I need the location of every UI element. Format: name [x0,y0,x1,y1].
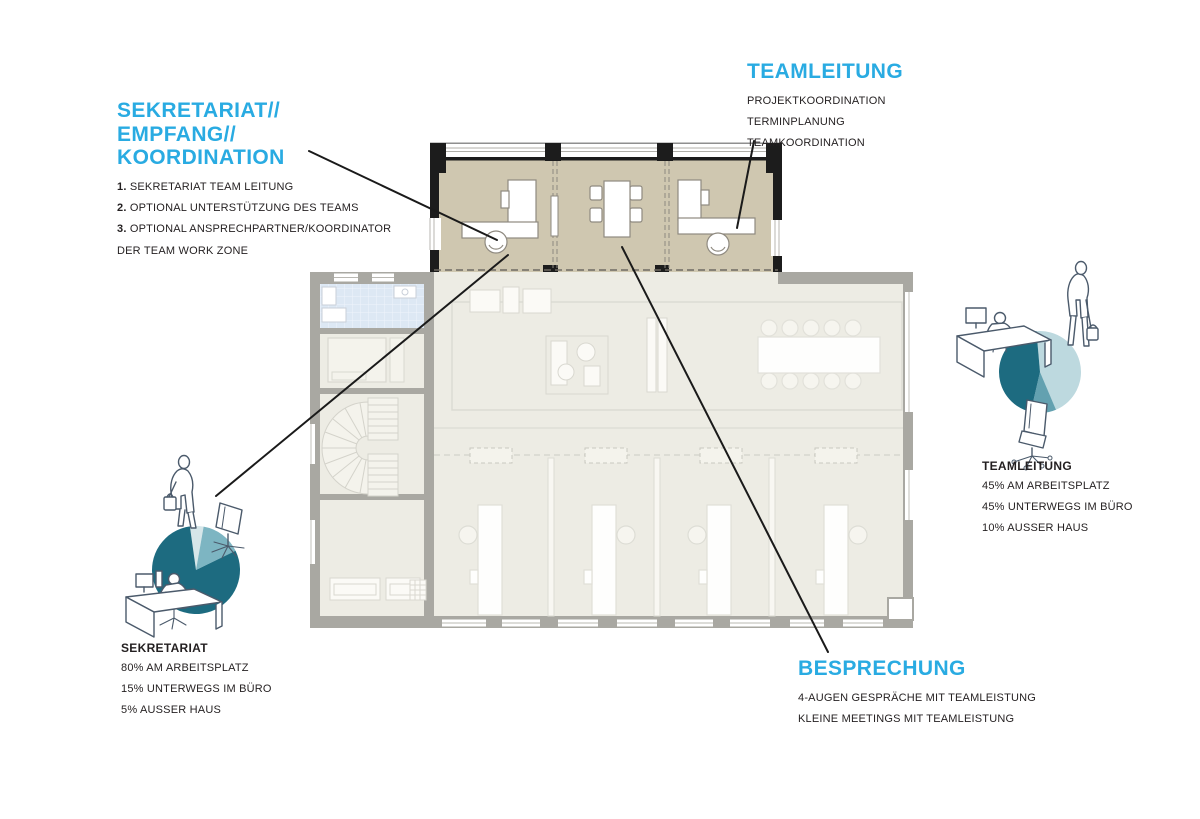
list-item: TEAMKOORDINATION [747,133,903,154]
walking-person-illustration [164,456,196,529]
teamwork-zone [427,143,785,273]
stats-line: 10% AUSSER HAUS [982,518,1133,539]
annotation-list: PROJEKTKOORDINATION TERMINPLANUNG TEAMKO… [747,91,903,155]
stats-line: 80% AM ARBEITSPLATZ [121,658,272,679]
stats-line: 15% UNTERWEGS IM BÜRO [121,679,272,700]
walking-person-illustration-right [1068,262,1098,347]
annotation-title: SEKRETARIAT// EMPFANG// KOORDINATION [117,99,391,170]
list-item: 2. OPTIONAL UNTERSTÜTZUNG DES TEAMS [117,198,391,219]
list-item: 4-AUGEN GESPRÄCHE MIT TEAMLEISTUNG [798,688,1036,709]
annotation-title: TEAMLEITUNG [747,60,903,84]
small-room [328,338,404,382]
list-item: KLEINE MEETINGS MIT TEAMLEISTUNG [798,709,1036,730]
list-item: TERMINPLANUNG [747,112,903,133]
corner-notch [888,598,913,620]
infographic-canvas: SEKRETARIAT// EMPFANG// KOORDINATION 1. … [0,0,1200,819]
stats-line: 45% UNTERWEGS IM BÜRO [982,497,1133,518]
list-item: DER TEAM WORK ZONE [117,241,391,262]
annotation-teamleitung-zone: TEAMLEITUNG PROJEKTKOORDINATION TERMINPL… [747,60,903,155]
bottom-left-room [330,578,426,600]
annotation-list: 1. SEKRETARIAT TEAM LEITUNG 2. OPTIONAL … [117,177,391,263]
annotation-title: BESPRECHUNG [798,657,1036,681]
bathroom [320,284,424,328]
stats-line: 45% AM ARBEITSPLATZ [982,476,1133,497]
stats-sekretariat: SEKRETARIAT 80% AM ARBEITSPLATZ 15% UNTE… [121,641,272,721]
stats-line: 5% AUSSER HAUS [121,700,272,721]
stats-teamleitung: TEAMLEITUNG 45% AM ARBEITSPLATZ 45% UNTE… [982,459,1133,539]
annotation-besprechung: BESPRECHUNG 4-AUGEN GESPRÄCHE MIT TEAMLE… [798,657,1036,730]
zone-door-leaf [551,196,558,236]
stats-title: SEKRETARIAT [121,641,272,655]
building-lower-faded [307,272,913,628]
list-item: 1. SEKRETARIAT TEAM LEITUNG [117,177,391,198]
list-item: 3. OPTIONAL ANSPRECHPARTNER/KOORDINATOR [117,219,391,240]
stats-title: TEAMLEITUNG [982,459,1133,473]
annotation-list: 4-AUGEN GESPRÄCHE MIT TEAMLEISTUNG KLEIN… [798,688,1036,731]
annotation-sekretariat-zone: SEKRETARIAT// EMPFANG// KOORDINATION 1. … [117,99,391,262]
list-item: PROJEKTKOORDINATION [747,91,903,112]
